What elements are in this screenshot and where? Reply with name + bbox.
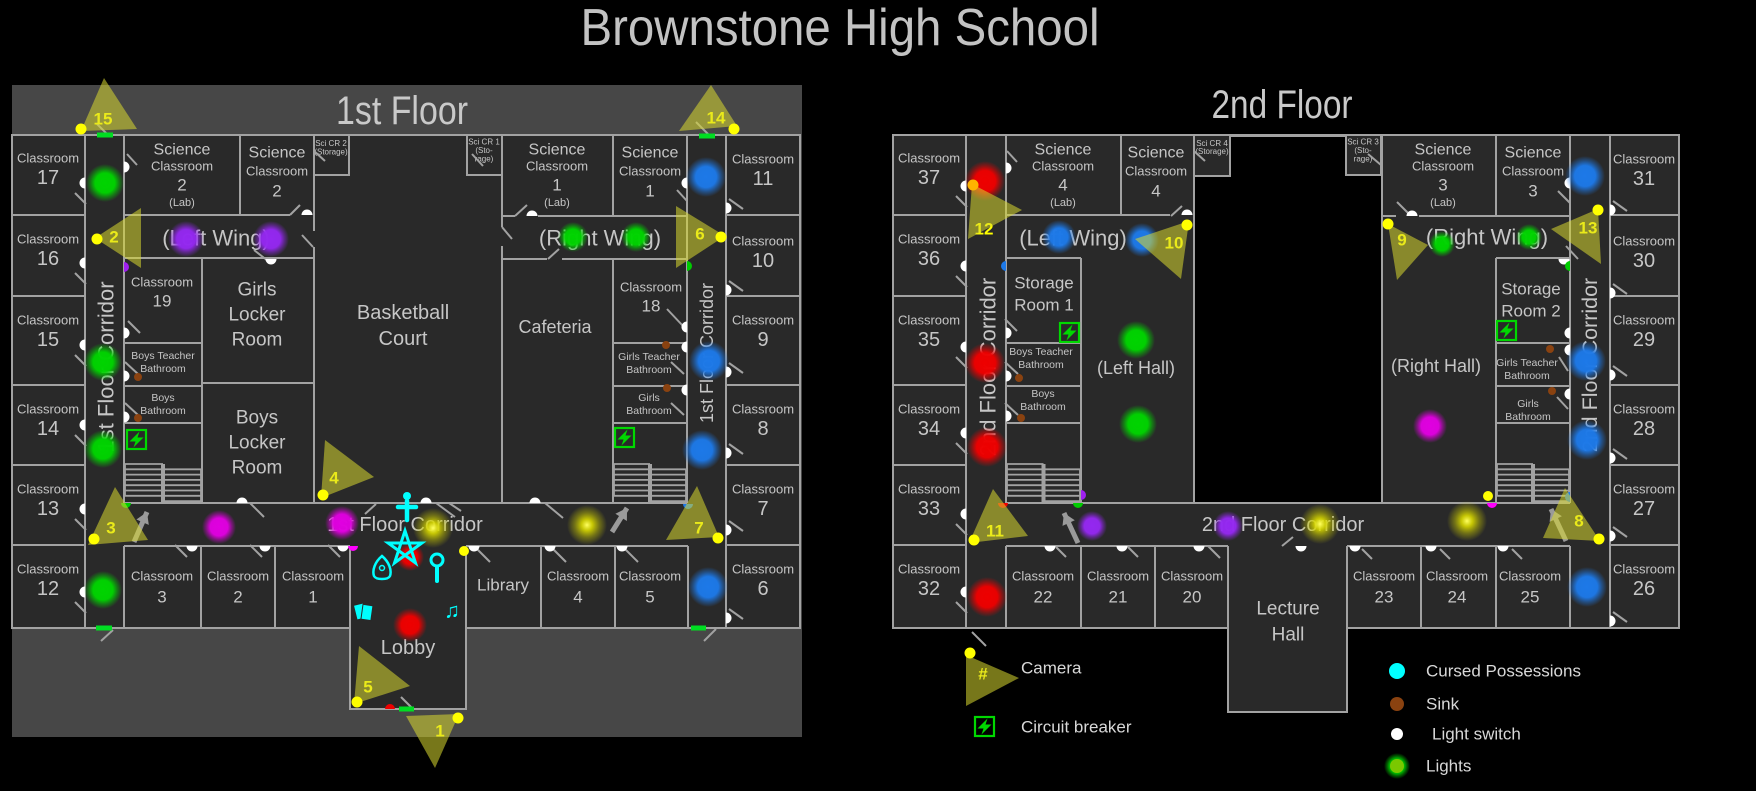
- svg-text:Classroom: Classroom: [207, 569, 269, 584]
- svg-text:17: 17: [37, 167, 59, 189]
- svg-text:Bathroom: Bathroom: [1505, 411, 1551, 423]
- svg-text:Classroom: Classroom: [732, 152, 794, 167]
- svg-text:Storage: Storage: [1501, 280, 1561, 299]
- svg-text:Bathroom: Bathroom: [1018, 359, 1064, 371]
- svg-text:Classroom: Classroom: [246, 164, 308, 179]
- svg-text:18: 18: [642, 297, 661, 316]
- svg-text:Classroom: Classroom: [1613, 234, 1675, 249]
- svg-text:3: 3: [157, 588, 166, 607]
- svg-text:35: 35: [918, 329, 940, 351]
- svg-text:Classroom: Classroom: [898, 313, 960, 328]
- svg-text:21: 21: [1109, 588, 1128, 607]
- svg-text:Girls Teacher: Girls Teacher: [618, 351, 680, 363]
- svg-text:28: 28: [1633, 418, 1655, 440]
- svg-text:13: 13: [37, 498, 59, 520]
- svg-text:Science: Science: [1505, 145, 1562, 162]
- svg-text:Science: Science: [529, 142, 586, 159]
- svg-text:Brownstone High School: Brownstone High School: [581, 0, 1100, 57]
- svg-text:Classroom: Classroom: [282, 569, 344, 584]
- svg-text:Classroom: Classroom: [17, 151, 79, 166]
- svg-text:24: 24: [1448, 588, 1467, 607]
- svg-text:Classroom: Classroom: [1012, 569, 1074, 584]
- svg-text:Science: Science: [154, 142, 211, 159]
- svg-text:Classroom: Classroom: [1613, 152, 1675, 167]
- svg-text:(Right Hall): (Right Hall): [1391, 356, 1481, 376]
- svg-text:Room: Room: [232, 330, 283, 351]
- svg-text:2: 2: [177, 176, 186, 195]
- svg-text:7: 7: [757, 498, 768, 520]
- svg-text:Classroom: Classroom: [898, 151, 960, 166]
- svg-text:(Lab): (Lab): [1430, 197, 1456, 209]
- svg-text:1: 1: [308, 588, 317, 607]
- svg-text:Classroom: Classroom: [17, 562, 79, 577]
- svg-text:Circuit breaker: Circuit breaker: [1021, 718, 1132, 737]
- svg-text:14: 14: [37, 418, 59, 440]
- svg-text:Bathroom: Bathroom: [626, 364, 672, 376]
- svg-text:16: 16: [37, 248, 59, 270]
- svg-text:Classroom: Classroom: [547, 569, 609, 584]
- svg-text:Storage: Storage: [1014, 274, 1074, 293]
- svg-text:Classroom: Classroom: [732, 402, 794, 417]
- svg-text:2: 2: [272, 182, 281, 201]
- svg-text:25: 25: [1521, 588, 1540, 607]
- svg-text:Classroom: Classroom: [151, 159, 213, 174]
- svg-text:34: 34: [918, 418, 940, 440]
- svg-text:Classroom: Classroom: [1161, 569, 1223, 584]
- svg-text:(Lab): (Lab): [169, 197, 195, 209]
- svg-text:Classroom: Classroom: [732, 234, 794, 249]
- svg-text:27: 27: [1633, 498, 1655, 520]
- svg-text:Classroom: Classroom: [1613, 313, 1675, 328]
- svg-text:Library: Library: [477, 576, 529, 595]
- svg-text:Classroom: Classroom: [619, 164, 681, 179]
- svg-text:Science: Science: [1035, 142, 1092, 159]
- svg-text:Classroom: Classroom: [1613, 482, 1675, 497]
- svg-text:36: 36: [918, 248, 940, 270]
- svg-text:9: 9: [757, 329, 768, 351]
- svg-text:Locker: Locker: [228, 433, 286, 454]
- svg-text:10: 10: [752, 250, 774, 272]
- svg-text:Classroom: Classroom: [131, 275, 193, 290]
- svg-text:Classroom: Classroom: [526, 159, 588, 174]
- svg-text:Science: Science: [622, 145, 679, 162]
- svg-text:2: 2: [233, 588, 242, 607]
- svg-text:Classroom: Classroom: [17, 232, 79, 247]
- svg-text:12: 12: [37, 578, 59, 600]
- svg-text:8: 8: [757, 418, 768, 440]
- svg-text:Basketball: Basketball: [357, 302, 449, 324]
- svg-text:1: 1: [552, 176, 561, 195]
- svg-text:30: 30: [1633, 250, 1655, 272]
- svg-text:♫: ♫: [444, 600, 460, 623]
- svg-text:5: 5: [645, 588, 654, 607]
- svg-text:Bathroom: Bathroom: [140, 363, 186, 375]
- svg-text:Classroom: Classroom: [1613, 402, 1675, 417]
- svg-text:(Lab): (Lab): [544, 197, 570, 209]
- svg-text:Boys Teacher: Boys Teacher: [131, 350, 195, 362]
- svg-text:3: 3: [1438, 176, 1447, 195]
- svg-text:Sink: Sink: [1426, 695, 1460, 714]
- svg-text:4: 4: [1151, 182, 1160, 201]
- svg-text:Classroom: Classroom: [1499, 569, 1561, 584]
- svg-text:Bathroom: Bathroom: [626, 405, 672, 417]
- svg-text:Girls: Girls: [237, 280, 276, 301]
- svg-text:Room 1: Room 1: [1014, 296, 1074, 315]
- svg-text:Boys: Boys: [1031, 388, 1054, 400]
- svg-text:15: 15: [37, 329, 59, 351]
- svg-text:(Left Hall): (Left Hall): [1097, 358, 1175, 378]
- svg-text:Science: Science: [249, 145, 306, 162]
- svg-text:19: 19: [153, 292, 172, 311]
- svg-text:Girls: Girls: [638, 392, 660, 404]
- svg-text:Classroom: Classroom: [619, 569, 681, 584]
- svg-text:Classroom: Classroom: [1426, 569, 1488, 584]
- svg-text:Boys: Boys: [236, 408, 278, 429]
- svg-text:23: 23: [1375, 588, 1394, 607]
- svg-text:Lights: Lights: [1426, 757, 1471, 776]
- svg-text:Classroom: Classroom: [898, 402, 960, 417]
- svg-text:26: 26: [1633, 578, 1655, 600]
- svg-text:Girls Teacher: Girls Teacher: [1496, 357, 1558, 369]
- svg-text:32: 32: [918, 578, 940, 600]
- svg-text:Boys Teacher: Boys Teacher: [1009, 346, 1073, 358]
- svg-text:Classroom: Classroom: [620, 280, 682, 295]
- svg-text:Court: Court: [379, 328, 428, 350]
- svg-text:Classroom: Classroom: [17, 313, 79, 328]
- svg-text:Science: Science: [1128, 145, 1185, 162]
- svg-text:22: 22: [1034, 588, 1053, 607]
- svg-text:Cursed Possessions: Cursed Possessions: [1426, 662, 1581, 681]
- svg-text:Classroom: Classroom: [898, 232, 960, 247]
- svg-text:37: 37: [918, 167, 940, 189]
- svg-text:29: 29: [1633, 329, 1655, 351]
- svg-text:31: 31: [1633, 168, 1655, 190]
- svg-text:1st Floor: 1st Floor: [336, 89, 468, 133]
- svg-text:Camera: Camera: [1021, 659, 1082, 678]
- svg-text:Classroom: Classroom: [1087, 569, 1149, 584]
- svg-text:Classroom: Classroom: [1125, 164, 1187, 179]
- svg-text:Room: Room: [232, 458, 283, 479]
- svg-text:(Lab): (Lab): [1050, 197, 1076, 209]
- svg-text:Classroom: Classroom: [1353, 569, 1415, 584]
- svg-text:Room 2: Room 2: [1501, 302, 1561, 321]
- svg-text:Cafeteria: Cafeteria: [518, 317, 592, 337]
- svg-text:Classroom: Classroom: [17, 402, 79, 417]
- svg-text:20: 20: [1183, 588, 1202, 607]
- svg-text:Classroom: Classroom: [898, 562, 960, 577]
- svg-text:(Storage): (Storage): [1195, 147, 1229, 156]
- svg-text:Classroom: Classroom: [1412, 159, 1474, 174]
- svg-text:Classroom: Classroom: [732, 482, 794, 497]
- svg-text:Classroom: Classroom: [1032, 159, 1094, 174]
- svg-text:Locker: Locker: [228, 305, 286, 326]
- svg-text:Classroom: Classroom: [17, 482, 79, 497]
- svg-text:Bathroom: Bathroom: [1504, 370, 1550, 382]
- svg-text:Boys: Boys: [151, 392, 174, 404]
- svg-text:Lecture: Lecture: [1256, 599, 1319, 620]
- svg-text:Bathroom: Bathroom: [140, 405, 186, 417]
- svg-text:Girls: Girls: [1517, 398, 1539, 410]
- svg-text:Bathroom: Bathroom: [1020, 401, 1066, 413]
- svg-text:Classroom: Classroom: [1613, 562, 1675, 577]
- svg-text:Classroom: Classroom: [131, 569, 193, 584]
- svg-text:2nd Floor: 2nd Floor: [1212, 83, 1353, 127]
- svg-text:1: 1: [645, 182, 654, 201]
- svg-text:6: 6: [757, 578, 768, 600]
- svg-text:Classroom: Classroom: [732, 313, 794, 328]
- svg-text:3: 3: [1528, 182, 1537, 201]
- svg-text:Science: Science: [1415, 142, 1472, 159]
- svg-text:Hall: Hall: [1272, 625, 1305, 646]
- svg-text:33: 33: [918, 498, 940, 520]
- svg-text:Classroom: Classroom: [732, 562, 794, 577]
- svg-text:Light switch: Light switch: [1432, 725, 1521, 744]
- svg-text:11: 11: [753, 168, 774, 190]
- svg-text:Classroom: Classroom: [898, 482, 960, 497]
- svg-text:4: 4: [573, 588, 582, 607]
- svg-text:4: 4: [1058, 176, 1067, 195]
- svg-text:Classroom: Classroom: [1502, 164, 1564, 179]
